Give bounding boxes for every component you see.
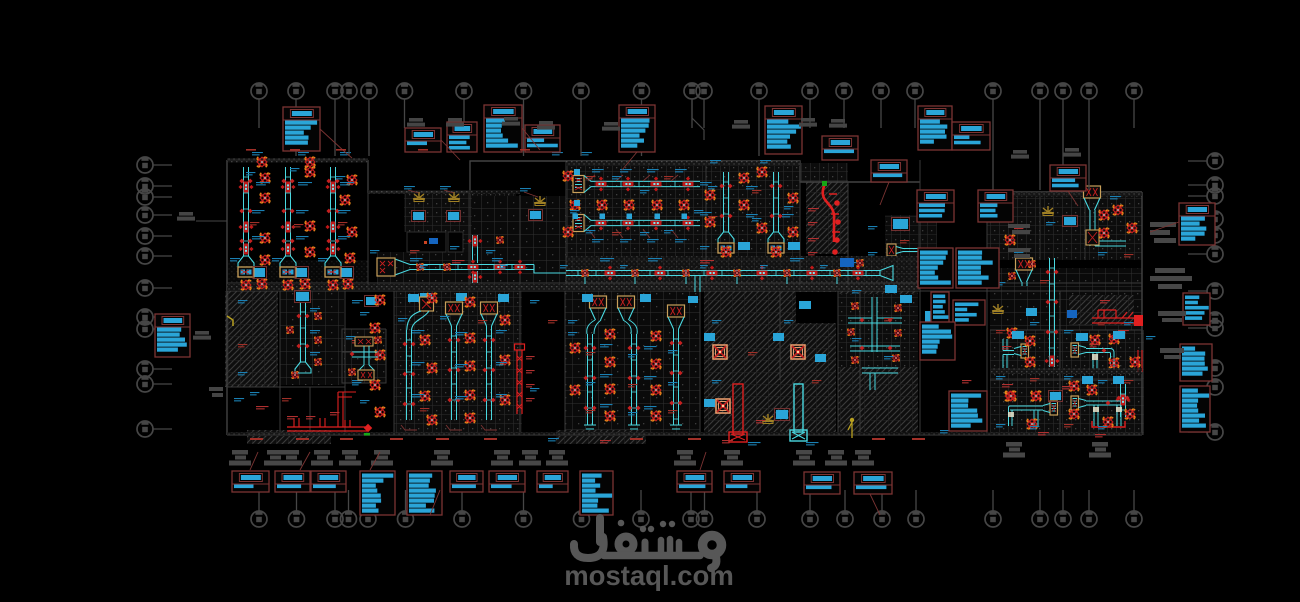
svg-text:mostaql.com: mostaql.com <box>564 560 734 591</box>
